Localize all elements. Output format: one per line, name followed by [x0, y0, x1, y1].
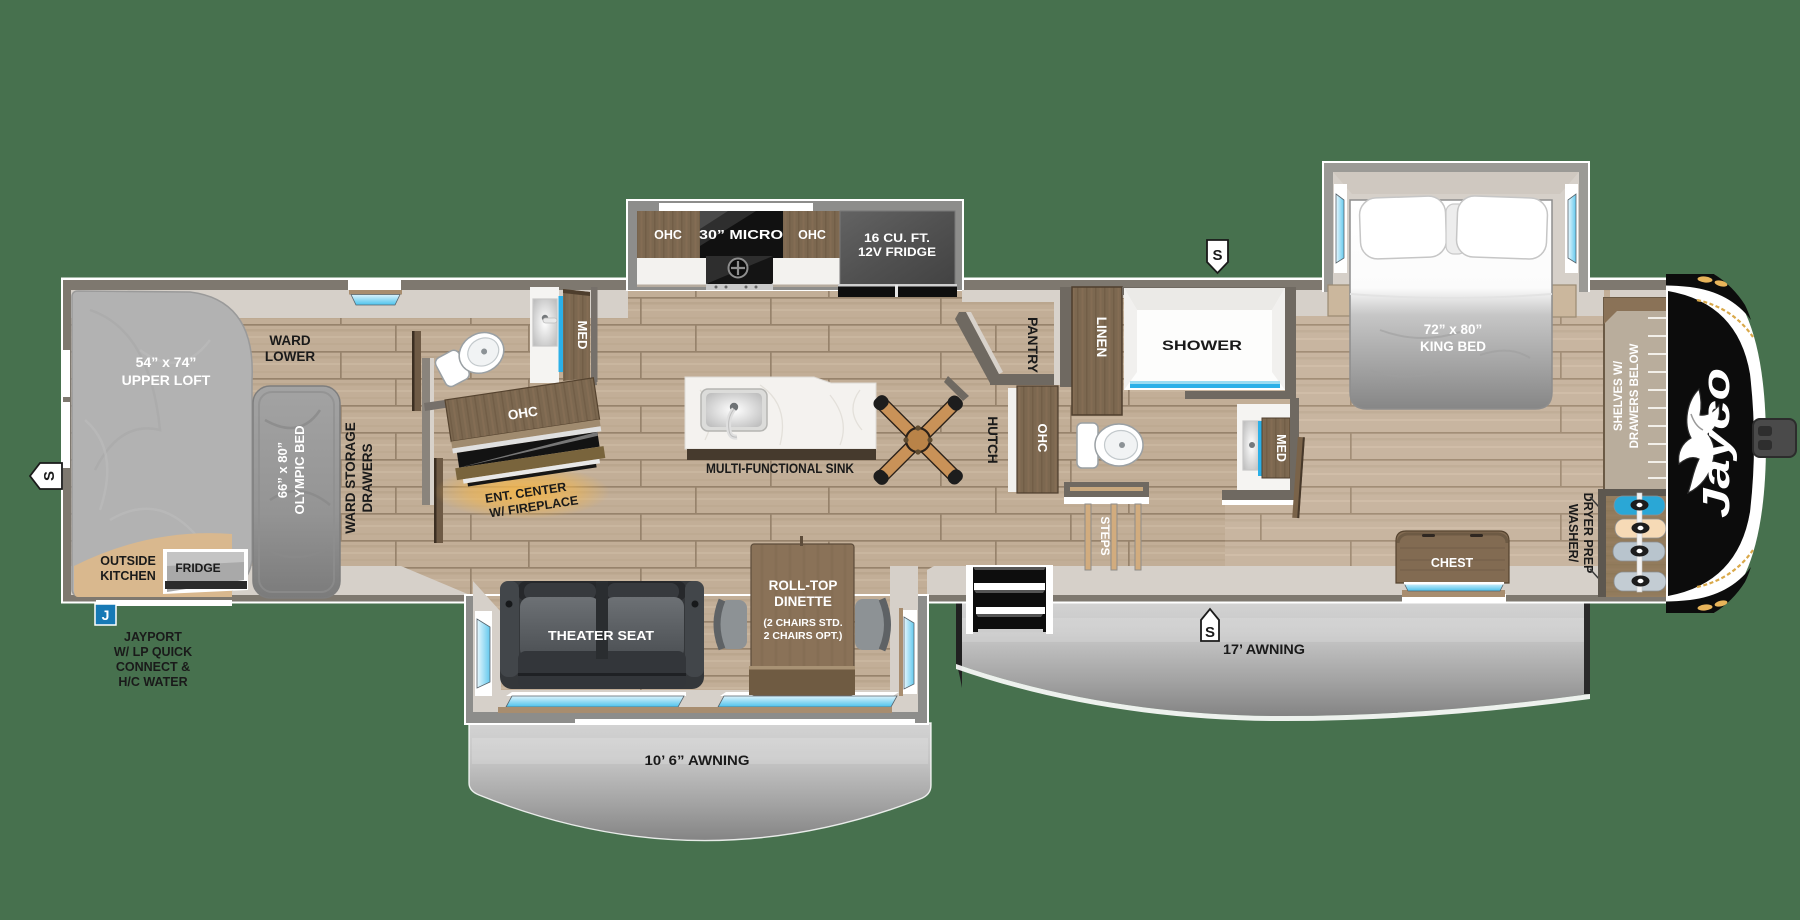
svg-text:2 CHAIRS OPT.): 2 CHAIRS OPT.)	[764, 630, 843, 642]
svg-text:ROLL-TOP: ROLL-TOP	[769, 578, 838, 593]
svg-text:PANTRY: PANTRY	[1025, 317, 1041, 374]
svg-text:WASHER/: WASHER/	[1566, 504, 1580, 563]
svg-text:KITCHEN: KITCHEN	[100, 569, 156, 583]
svg-text:STEPS: STEPS	[1098, 516, 1112, 555]
svg-text:CHEST: CHEST	[1431, 556, 1474, 570]
svg-text:J: J	[102, 607, 110, 623]
svg-text:LOWER: LOWER	[265, 349, 315, 364]
svg-text:MED: MED	[575, 321, 590, 350]
svg-text:OHC: OHC	[654, 228, 682, 242]
svg-text:Jayco: Jayco	[1696, 368, 1738, 518]
svg-text:54” x 74”: 54” x 74”	[136, 354, 197, 370]
svg-text:12V FRIDGE: 12V FRIDGE	[858, 245, 936, 259]
svg-text:S: S	[1212, 247, 1222, 264]
svg-text:WARD STORAGE: WARD STORAGE	[343, 422, 358, 534]
svg-text:HUTCH: HUTCH	[985, 416, 1000, 463]
svg-text:H/C WATER: H/C WATER	[118, 675, 187, 689]
svg-text:OHC: OHC	[1035, 424, 1050, 454]
svg-text:66” x 80”: 66” x 80”	[275, 442, 290, 498]
svg-text:MULTI-FUNCTIONAL SINK: MULTI-FUNCTIONAL SINK	[706, 461, 854, 476]
svg-text:16 CU. FT.: 16 CU. FT.	[864, 231, 930, 245]
svg-text:17’ AWNING: 17’ AWNING	[1223, 642, 1305, 657]
svg-text:(2 CHAIRS STD.: (2 CHAIRS STD.	[763, 617, 842, 629]
svg-text:THEATER SEAT: THEATER SEAT	[548, 628, 654, 643]
svg-text:OUTSIDE: OUTSIDE	[100, 554, 156, 568]
svg-text:MED: MED	[1274, 434, 1288, 462]
svg-text:DINETTE: DINETTE	[774, 594, 832, 609]
svg-text:LINEN: LINEN	[1094, 317, 1109, 358]
svg-text:CONNECT &: CONNECT &	[116, 660, 190, 674]
svg-text:UPPER LOFT: UPPER LOFT	[122, 372, 211, 388]
svg-text:OLYMPIC BED: OLYMPIC BED	[292, 425, 307, 514]
svg-text:30” MICRO: 30” MICRO	[699, 228, 783, 242]
svg-text:KING BED: KING BED	[1420, 339, 1486, 354]
svg-text:S: S	[41, 471, 58, 481]
svg-text:72” x 80”: 72” x 80”	[1424, 322, 1483, 337]
svg-text:JAYPORT: JAYPORT	[124, 630, 182, 644]
svg-text:SHELVES W/: SHELVES W/	[1613, 360, 1625, 431]
svg-text:OHC: OHC	[798, 228, 826, 242]
svg-text:W/ LP QUICK: W/ LP QUICK	[114, 645, 192, 659]
svg-text:10’ 6” AWNING: 10’ 6” AWNING	[645, 753, 750, 768]
svg-text:DRAWERS BELOW: DRAWERS BELOW	[1629, 343, 1641, 448]
svg-text:DRAWERS: DRAWERS	[360, 443, 375, 512]
svg-text:S: S	[1205, 624, 1215, 641]
svg-text:WARD: WARD	[269, 333, 310, 348]
svg-text:FRIDGE: FRIDGE	[175, 561, 220, 575]
svg-text:DRYER PREP: DRYER PREP	[1581, 493, 1595, 574]
svg-text:SHOWER: SHOWER	[1162, 338, 1242, 353]
